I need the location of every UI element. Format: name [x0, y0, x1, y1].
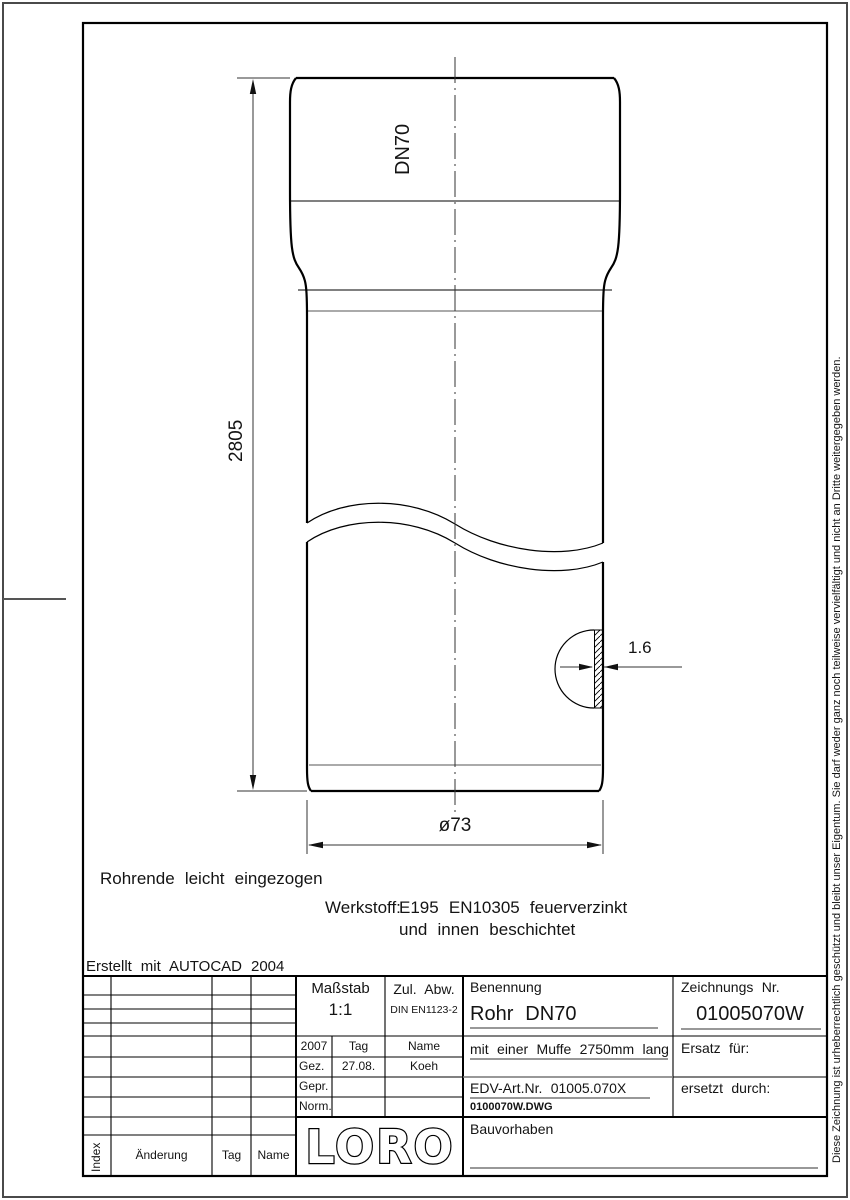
- length-dimension-label: 2805: [227, 420, 248, 462]
- zeichnungs-nr-label: Zeichnungs Nr.: [681, 980, 780, 995]
- dimension-arrows: [250, 79, 618, 848]
- revision-name-header: Name: [251, 1149, 296, 1162]
- zeichnungs-nr-value: 01005070W: [673, 1003, 827, 1025]
- material-label: Werkstoff:: [325, 899, 401, 918]
- pipe-end-note: Rohrende leicht eingezogen: [100, 870, 323, 889]
- dn-label: DN70: [392, 124, 414, 175]
- masstab-value: 1:1: [296, 1001, 385, 1020]
- revision-tag-header: Tag: [212, 1149, 251, 1162]
- bauvorhaben-label: Bauvorhaben: [470, 1122, 553, 1137]
- edv-art-nr: EDV-Art.Nr. 01005.070X: [470, 1081, 626, 1096]
- zul-abw-value: DIN EN1123-2: [385, 1005, 463, 1017]
- ersetzt-durch-label: ersetzt durch:: [681, 1081, 770, 1096]
- dimension-lines: [237, 78, 682, 854]
- diameter-dimension-label: ø73: [405, 816, 505, 837]
- drawing-sheet: LORO DN70 2805 1.6 ø73 Rohrende leicht e…: [0, 0, 850, 1200]
- approval-row-tag: 27.08.: [332, 1060, 385, 1073]
- company-logo: LORO: [305, 1120, 454, 1174]
- approval-name-header: Name: [385, 1040, 463, 1053]
- material-line2: und innen beschichtet: [399, 921, 575, 940]
- benennung-value: Rohr DN70: [470, 1003, 576, 1025]
- ersatz-fuer-label: Ersatz für:: [681, 1041, 749, 1056]
- description-text: mit einer Muffe 2750mm lang: [470, 1042, 669, 1057]
- wall-thickness-label: 1.6: [628, 639, 652, 658]
- revision-aenderung-header: Änderung: [111, 1149, 212, 1162]
- approval-row-label: Norm.: [299, 1100, 332, 1113]
- approval-tag-header: Tag: [332, 1040, 385, 1053]
- benennung-label: Benennung: [470, 980, 542, 995]
- approval-row-label: Gepr.: [299, 1080, 328, 1093]
- masstab-label: Maßstab: [296, 981, 385, 998]
- material-line1: E195 EN10305 feuerverzinkt: [399, 899, 627, 918]
- dwg-filename: 0100070W.DWG: [470, 1101, 553, 1113]
- approval-row-label: Gez.: [299, 1060, 324, 1073]
- revision-index-header: Index: [90, 1143, 103, 1172]
- approval-year: 2007: [296, 1040, 332, 1053]
- zul-abw-label: Zul. Abw.: [385, 982, 463, 997]
- created-with-note: Erstellt mit AUTOCAD 2004: [86, 959, 284, 976]
- copyright-note: Diese Zeichnung ist urheberrechtlich ges…: [831, 356, 843, 1163]
- pipe-interior-lines: [290, 57, 620, 815]
- approval-row-name: Koeh: [385, 1060, 463, 1073]
